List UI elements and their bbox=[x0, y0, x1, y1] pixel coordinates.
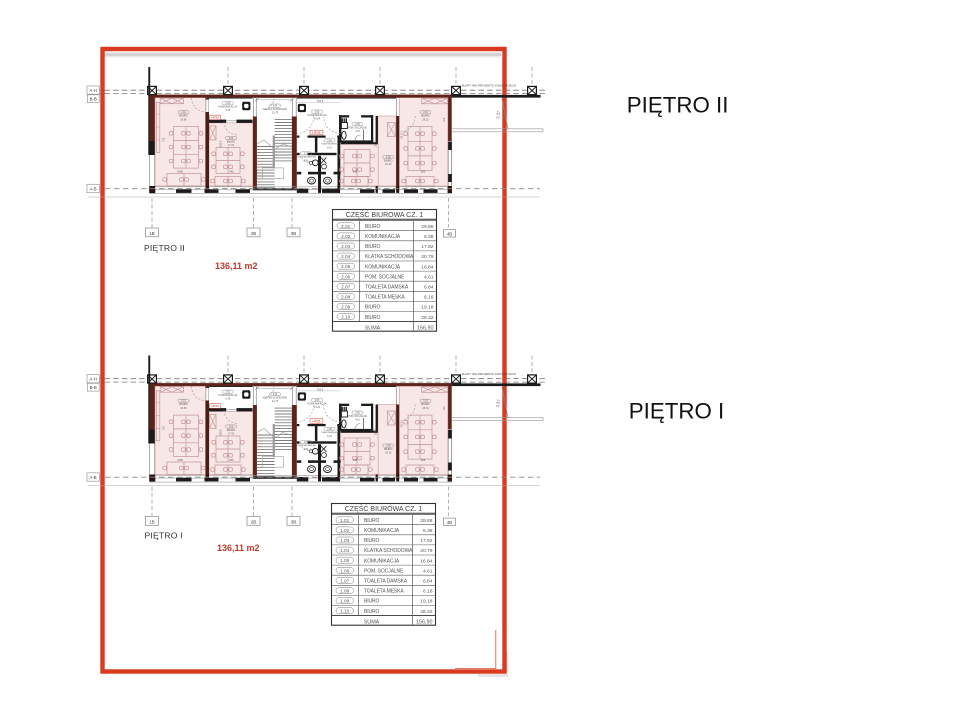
svg-text:PIĘTRO II: PIĘTRO II bbox=[144, 243, 185, 253]
svg-text:1.03: 1.03 bbox=[340, 538, 350, 543]
svg-text:136,11 m2: 136,11 m2 bbox=[215, 261, 258, 271]
svg-text:345: 345 bbox=[229, 458, 234, 462]
svg-text:345: 345 bbox=[229, 170, 234, 174]
svg-text:1.04: 1.04 bbox=[340, 548, 350, 553]
svg-text:2.10: 2.10 bbox=[341, 315, 351, 320]
svg-text:KLATKA SCHODOWA: KLATKA SCHODOWA bbox=[263, 396, 287, 399]
svg-text:PIĘTRO I: PIĘTRO I bbox=[629, 399, 724, 424]
svg-text:KOMUNIKACJA: KOMUNIKACJA bbox=[218, 393, 237, 397]
svg-text:2B: 2B bbox=[251, 519, 257, 524]
svg-text:2.06: 2.06 bbox=[355, 413, 360, 415]
svg-text:156,90: 156,90 bbox=[417, 326, 434, 332]
svg-text:HP25: HP25 bbox=[211, 404, 219, 408]
svg-text:28.32: 28.32 bbox=[421, 315, 434, 321]
svg-text:PIĘTRO II: PIĘTRO II bbox=[627, 93, 729, 118]
svg-text:TOALETA DAMSKA: TOALETA DAMSKA bbox=[296, 156, 316, 159]
svg-text:17.92: 17.92 bbox=[421, 244, 434, 250]
svg-text:4B: 4B bbox=[447, 520, 452, 525]
svg-text:3B: 3B bbox=[291, 231, 297, 236]
svg-text:POM. SOCJALNE: POM. SOCJALNE bbox=[348, 415, 367, 418]
svg-text:6.16: 6.16 bbox=[327, 435, 332, 438]
svg-text:2B: 2B bbox=[251, 231, 257, 236]
svg-text:365: 365 bbox=[421, 170, 426, 174]
svg-text:4.61: 4.61 bbox=[423, 568, 433, 574]
svg-text:435: 435 bbox=[353, 458, 358, 462]
svg-text:2.01: 2.01 bbox=[341, 224, 351, 229]
svg-text:28.32: 28.32 bbox=[422, 407, 429, 410]
svg-text:TOALETA DAMSKA: TOALETA DAMSKA bbox=[296, 444, 316, 447]
svg-text:1.06: 1.06 bbox=[340, 568, 350, 573]
svg-text:CZĘŚĆ BIUROWA CZ. 1: CZĘŚĆ BIUROWA CZ. 1 bbox=[345, 504, 423, 513]
svg-text:BIURO: BIURO bbox=[365, 315, 381, 321]
svg-text:BIURO: BIURO bbox=[384, 447, 392, 451]
svg-text:HP25: HP25 bbox=[312, 419, 320, 423]
svg-text:51.3: 51.3 bbox=[400, 133, 404, 139]
svg-text:253.3: 253.3 bbox=[374, 140, 378, 147]
svg-text:20.79: 20.79 bbox=[272, 112, 279, 115]
svg-text:2,37: 2,37 bbox=[495, 110, 501, 119]
svg-text:6.84: 6.84 bbox=[424, 285, 434, 291]
svg-text:TOALETA MĘSKA: TOALETA MĘSKA bbox=[321, 143, 339, 146]
svg-text:2.04: 2.04 bbox=[341, 254, 351, 259]
svg-text:712: 712 bbox=[162, 137, 166, 142]
svg-text:SUMA: SUMA bbox=[365, 326, 381, 332]
svg-text:20.79: 20.79 bbox=[420, 548, 433, 554]
svg-text:4105: 4105 bbox=[177, 170, 183, 174]
svg-text:2.03: 2.03 bbox=[341, 244, 351, 249]
svg-text:2.02: 2.02 bbox=[341, 234, 351, 239]
svg-text:TOALETA DAMSKA: TOALETA DAMSKA bbox=[364, 579, 408, 585]
svg-text:A-H: A-H bbox=[89, 88, 96, 93]
svg-text:253.3: 253.3 bbox=[374, 428, 378, 435]
svg-text:POM. SOCJALNE: POM. SOCJALNE bbox=[364, 568, 404, 574]
svg-text:4.61: 4.61 bbox=[424, 274, 434, 280]
svg-text:2.05: 2.05 bbox=[341, 264, 351, 269]
svg-text:BIURO: BIURO bbox=[365, 305, 381, 311]
svg-text:SŁUPY WG PROJEKTU KONSTRUKCJI: SŁUPY WG PROJEKTU KONSTRUKCJI bbox=[462, 372, 517, 376]
svg-text:2,37: 2,37 bbox=[495, 398, 501, 407]
svg-text:PIĘTRO I: PIĘTRO I bbox=[145, 531, 183, 541]
svg-text:136,11 m2: 136,11 m2 bbox=[217, 543, 260, 553]
svg-text:BIURO: BIURO bbox=[365, 244, 381, 250]
svg-text:1.02: 1.02 bbox=[340, 528, 350, 533]
svg-text:B-B: B-B bbox=[90, 385, 97, 390]
svg-text:TOALETA MĘSKA: TOALETA MĘSKA bbox=[321, 431, 339, 434]
svg-text:BIURO: BIURO bbox=[364, 538, 380, 544]
svg-text:KOMUNIKACJA: KOMUNIKACJA bbox=[365, 264, 401, 270]
svg-text:2.08: 2.08 bbox=[327, 429, 332, 431]
svg-text:519.5: 519.5 bbox=[219, 140, 223, 147]
svg-text:17.92: 17.92 bbox=[420, 538, 433, 544]
svg-text:KLATKA SCHODOWA: KLATKA SCHODOWA bbox=[364, 548, 413, 554]
svg-text:19.18: 19.18 bbox=[385, 163, 392, 166]
svg-text:1.01: 1.01 bbox=[340, 518, 350, 523]
svg-text:1B: 1B bbox=[149, 231, 155, 236]
svg-text:17.92: 17.92 bbox=[228, 433, 235, 436]
svg-text:51.3: 51.3 bbox=[400, 421, 404, 427]
svg-text:1.05: 1.05 bbox=[340, 558, 350, 563]
svg-text:16.84: 16.84 bbox=[421, 264, 434, 270]
svg-text:4.61: 4.61 bbox=[355, 419, 360, 422]
svg-text:BIURO: BIURO bbox=[179, 402, 187, 406]
svg-text:KOMUNIKACJA: KOMUNIKACJA bbox=[218, 105, 237, 109]
svg-text:KOMUNIKACJA: KOMUNIKACJA bbox=[365, 234, 401, 240]
svg-text:16.84: 16.84 bbox=[314, 118, 321, 121]
svg-text:2.06: 2.06 bbox=[355, 124, 360, 126]
svg-text:6.84: 6.84 bbox=[304, 448, 309, 451]
svg-text:435: 435 bbox=[353, 170, 358, 174]
svg-text:20.79: 20.79 bbox=[272, 400, 279, 403]
svg-text:6.38: 6.38 bbox=[423, 528, 433, 534]
svg-text:POM. SOCJALNE: POM. SOCJALNE bbox=[348, 126, 367, 129]
svg-text:BIURO: BIURO bbox=[364, 609, 380, 615]
svg-text:TOALETA DAMSKA: TOALETA DAMSKA bbox=[365, 285, 409, 291]
svg-text:2.07: 2.07 bbox=[304, 442, 309, 444]
svg-text:519.5: 519.5 bbox=[219, 429, 223, 436]
svg-text:2.09: 2.09 bbox=[341, 305, 351, 310]
svg-text:28.32: 28.32 bbox=[422, 118, 429, 121]
svg-text:29.86: 29.86 bbox=[180, 407, 187, 410]
svg-text:365: 365 bbox=[421, 458, 426, 462]
svg-text:16.84: 16.84 bbox=[314, 406, 321, 409]
svg-text:4105: 4105 bbox=[177, 458, 183, 462]
svg-text:6.38: 6.38 bbox=[225, 398, 230, 401]
svg-text:BIURO: BIURO bbox=[179, 114, 187, 118]
svg-text:4B: 4B bbox=[447, 231, 452, 236]
svg-text:19.18: 19.18 bbox=[421, 305, 434, 311]
svg-text:6.16: 6.16 bbox=[424, 295, 434, 301]
svg-text:1.10: 1.10 bbox=[340, 609, 350, 614]
svg-text:712: 712 bbox=[442, 406, 446, 411]
svg-text:BIURO: BIURO bbox=[227, 428, 235, 432]
svg-text:6.84: 6.84 bbox=[304, 159, 309, 162]
svg-text:19.18: 19.18 bbox=[420, 599, 433, 605]
svg-text:HP25: HP25 bbox=[211, 116, 219, 120]
svg-text:BIURO: BIURO bbox=[227, 139, 235, 143]
svg-text:1.09: 1.09 bbox=[340, 599, 350, 604]
svg-text:A-B: A-B bbox=[90, 186, 97, 191]
svg-text:2.07: 2.07 bbox=[304, 153, 309, 155]
svg-text:6.38: 6.38 bbox=[424, 234, 434, 240]
svg-text:4.61: 4.61 bbox=[355, 130, 360, 133]
svg-text:762.5: 762.5 bbox=[317, 99, 324, 103]
svg-text:1.07: 1.07 bbox=[340, 578, 350, 583]
svg-text:BIURO: BIURO bbox=[421, 402, 429, 406]
svg-text:CZĘŚĆ BIUROWA CZ. 1: CZĘŚĆ BIUROWA CZ. 1 bbox=[346, 210, 424, 219]
svg-text:2.08: 2.08 bbox=[341, 295, 351, 300]
svg-text:2.08: 2.08 bbox=[327, 140, 332, 142]
svg-text:17.92: 17.92 bbox=[228, 144, 235, 147]
svg-text:2.07: 2.07 bbox=[341, 284, 351, 289]
svg-text:6.38: 6.38 bbox=[225, 109, 230, 112]
svg-text:156,90: 156,90 bbox=[416, 620, 433, 626]
svg-text:BIURO: BIURO bbox=[421, 114, 429, 118]
svg-text:1.08: 1.08 bbox=[340, 589, 350, 594]
svg-text:712: 712 bbox=[442, 117, 446, 122]
svg-text:BIURO: BIURO bbox=[364, 518, 380, 524]
svg-text:6.16: 6.16 bbox=[423, 589, 433, 595]
svg-text:SŁUPY WG PROJEKTU KONSTRUKCJI: SŁUPY WG PROJEKTU KONSTRUKCJI bbox=[462, 84, 517, 88]
svg-text:KOMUNIKACJA: KOMUNIKACJA bbox=[364, 558, 400, 564]
svg-text:1B: 1B bbox=[149, 519, 155, 524]
svg-text:6.84: 6.84 bbox=[423, 579, 433, 585]
svg-text:16.84: 16.84 bbox=[420, 558, 433, 564]
svg-text:BIURO: BIURO bbox=[365, 224, 381, 230]
svg-text:20.79: 20.79 bbox=[421, 254, 434, 260]
svg-text:762.5: 762.5 bbox=[317, 387, 324, 391]
svg-text:HP25: HP25 bbox=[312, 131, 320, 135]
svg-text:TOALETA MĘSKA: TOALETA MĘSKA bbox=[364, 589, 404, 595]
svg-text:28.32: 28.32 bbox=[420, 609, 433, 615]
svg-text:KLATKA SCHODOWA: KLATKA SCHODOWA bbox=[263, 108, 287, 111]
svg-text:29.86: 29.86 bbox=[421, 224, 434, 230]
svg-text:6.16: 6.16 bbox=[327, 146, 332, 149]
svg-text:BIURO: BIURO bbox=[384, 158, 392, 162]
svg-text:TOALETA MĘSKA: TOALETA MĘSKA bbox=[365, 295, 405, 301]
svg-text:19.18: 19.18 bbox=[385, 452, 392, 455]
svg-text:A-H: A-H bbox=[89, 377, 96, 382]
svg-text:POM. SOCJALNE: POM. SOCJALNE bbox=[365, 274, 405, 280]
svg-text:2.06: 2.06 bbox=[341, 274, 351, 279]
svg-text:712: 712 bbox=[162, 426, 166, 431]
svg-text:KOMUNIKACJA: KOMUNIKACJA bbox=[364, 528, 400, 534]
svg-text:KLATKA SCHODOWA: KLATKA SCHODOWA bbox=[365, 254, 414, 260]
svg-text:29.86: 29.86 bbox=[420, 518, 433, 524]
svg-text:BIURO: BIURO bbox=[364, 599, 380, 605]
svg-text:29.86: 29.86 bbox=[180, 118, 187, 121]
svg-text:KOMUNIKACJA: KOMUNIKACJA bbox=[308, 401, 327, 405]
svg-text:B-B: B-B bbox=[90, 96, 97, 101]
svg-text:SUMA: SUMA bbox=[364, 620, 380, 626]
svg-text:A-B: A-B bbox=[90, 475, 97, 480]
svg-text:KOMUNIKACJA: KOMUNIKACJA bbox=[308, 113, 327, 117]
svg-text:3B: 3B bbox=[291, 519, 297, 524]
